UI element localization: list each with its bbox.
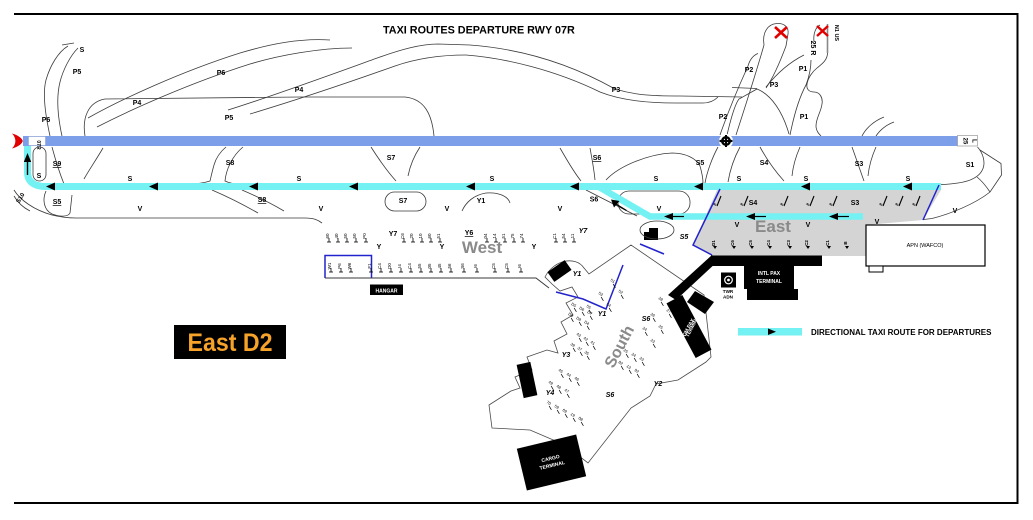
svg-text:S6: S6 [593,155,602,162]
svg-text:S6: S6 [606,392,615,399]
svg-text:C3: C3 [786,240,791,246]
svg-text:C5: C5 [491,263,496,269]
svg-text:40: 40 [334,233,339,239]
svg-text:25 R: 25 R [809,41,816,56]
svg-text:P0: P0 [362,233,367,239]
svg-text:25: 25 [962,138,968,145]
svg-text:C6: C6 [730,240,735,246]
svg-text:P2: P2 [745,67,754,74]
svg-text:S4: S4 [760,160,769,167]
svg-text:Y: Y [440,244,445,251]
svg-text:S8: S8 [226,160,235,167]
svg-text:Y7: Y7 [579,228,589,235]
svg-text:East D2: East D2 [188,329,273,357]
svg-text:Y: Y [532,244,537,251]
svg-text:S: S [128,176,133,183]
svg-text:S6: S6 [460,263,465,269]
svg-text:S5: S5 [696,160,705,167]
svg-text:P6: P6 [42,117,51,124]
svg-text:P3: P3 [770,82,779,89]
svg-text:05: 05 [427,263,432,269]
svg-text:51: 51 [436,233,441,239]
svg-text:S5: S5 [53,199,62,206]
svg-text:Y4: Y4 [546,390,555,397]
svg-text:Y6: Y6 [465,230,474,237]
svg-text:TAXI ROUTES DEPARTURE RWY 07R: TAXI ROUTES DEPARTURE RWY 07R [383,25,575,37]
svg-text:P6: P6 [217,70,226,77]
svg-text:V: V [735,222,740,229]
svg-text:S: S [737,176,742,183]
svg-text:C4: C4 [377,263,382,269]
svg-text:S3: S3 [855,161,864,168]
svg-text:55: 55 [417,263,422,269]
svg-text:S: S [906,176,911,183]
svg-text:S10: S10 [16,192,27,205]
svg-text:Y2: Y2 [654,381,663,388]
svg-text:INTL PAX: INTL PAX [758,271,781,277]
svg-text:C4: C4 [766,240,771,246]
svg-text:V: V [445,206,450,213]
svg-text:TERMINAL: TERMINAL [756,279,782,285]
svg-text:P6: P6 [337,263,342,269]
svg-text:P3: P3 [612,87,621,94]
svg-text:11: 11 [570,233,575,238]
svg-text:S: S [490,176,495,183]
svg-text:60: 60 [325,233,330,239]
svg-text:45: 45 [437,263,442,269]
svg-text:I4: I4 [397,264,402,268]
svg-text:P5: P5 [225,115,234,122]
svg-text:S8: S8 [258,197,267,204]
svg-text:C1: C1 [825,240,830,246]
svg-text:51: 51 [501,233,506,239]
svg-text:East: East [755,217,791,236]
svg-text:V: V [953,208,958,215]
svg-text:V: V [319,206,324,213]
svg-text:75: 75 [510,233,515,239]
svg-text:ADN: ADN [723,295,734,300]
svg-text:C2: C2 [804,240,809,246]
svg-text:S6: S6 [642,316,651,323]
svg-text:54: 54 [561,233,566,239]
svg-text:C4: C4 [407,263,412,269]
svg-text:L: L [971,139,977,143]
svg-text:S6: S6 [590,197,599,204]
svg-text:P5: P5 [73,69,82,76]
svg-text:HANGAR: HANGAR [376,289,398,295]
svg-text:S: S [654,176,659,183]
svg-text:C5: C5 [748,240,753,246]
svg-text:N1 US: N1 US [833,25,839,42]
svg-text:Y: Y [377,244,382,251]
svg-text:P1: P1 [799,66,808,73]
svg-text:S4: S4 [749,200,758,207]
svg-text:74: 74 [519,233,524,239]
svg-text:20: 20 [409,233,414,239]
svg-text:C5: C5 [504,263,509,269]
svg-text:I6: I6 [473,264,478,268]
svg-text:TWR: TWR [723,289,734,294]
svg-text:Y1: Y1 [598,311,607,318]
svg-text:S: S [37,173,42,180]
svg-text:S1: S1 [966,162,975,169]
svg-text:S: S [80,47,85,54]
svg-text:P4: P4 [133,100,142,107]
svg-text:C6: C6 [400,233,405,239]
svg-text:V: V [806,222,811,229]
svg-text:S: S [297,176,302,183]
svg-text:I6: I6 [517,264,522,268]
svg-text:S3: S3 [851,200,860,207]
svg-text:S9: S9 [53,161,62,168]
svg-text:56: 56 [447,263,452,269]
svg-text:APN (WAFCO): APN (WAFCO) [907,243,944,249]
svg-text:V: V [138,206,143,213]
svg-text:Y3: Y3 [562,352,571,359]
svg-text:50: 50 [343,233,348,239]
svg-text:P4: P4 [295,87,304,94]
svg-text:S5: S5 [680,234,689,241]
svg-text:60: 60 [427,233,432,239]
svg-text:04: 04 [483,233,488,239]
svg-text:F1: F1 [367,263,372,269]
svg-text:14: 14 [492,233,497,239]
svg-text:DIRECTIONAL TAXI ROUTE FOR DEP: DIRECTIONAL TAXI ROUTE FOR DEPARTURES [811,328,992,337]
svg-text:Y1: Y1 [477,198,486,205]
svg-text:S7: S7 [399,198,408,205]
svg-text:10: 10 [418,233,423,239]
svg-text:P2: P2 [719,114,728,121]
svg-text:Y7: Y7 [389,231,398,238]
svg-text:50: 50 [352,233,357,239]
svg-text:S: S [804,176,809,183]
svg-text:P1: P1 [800,114,809,121]
svg-text:V: V [657,206,662,213]
svg-text:S7: S7 [387,155,396,162]
svg-text:V: V [558,206,563,213]
svg-text:D0: D0 [387,263,392,269]
svg-text:Y1: Y1 [573,271,582,278]
svg-text:C1: C1 [552,233,557,239]
svg-text:D1: D1 [711,240,716,246]
